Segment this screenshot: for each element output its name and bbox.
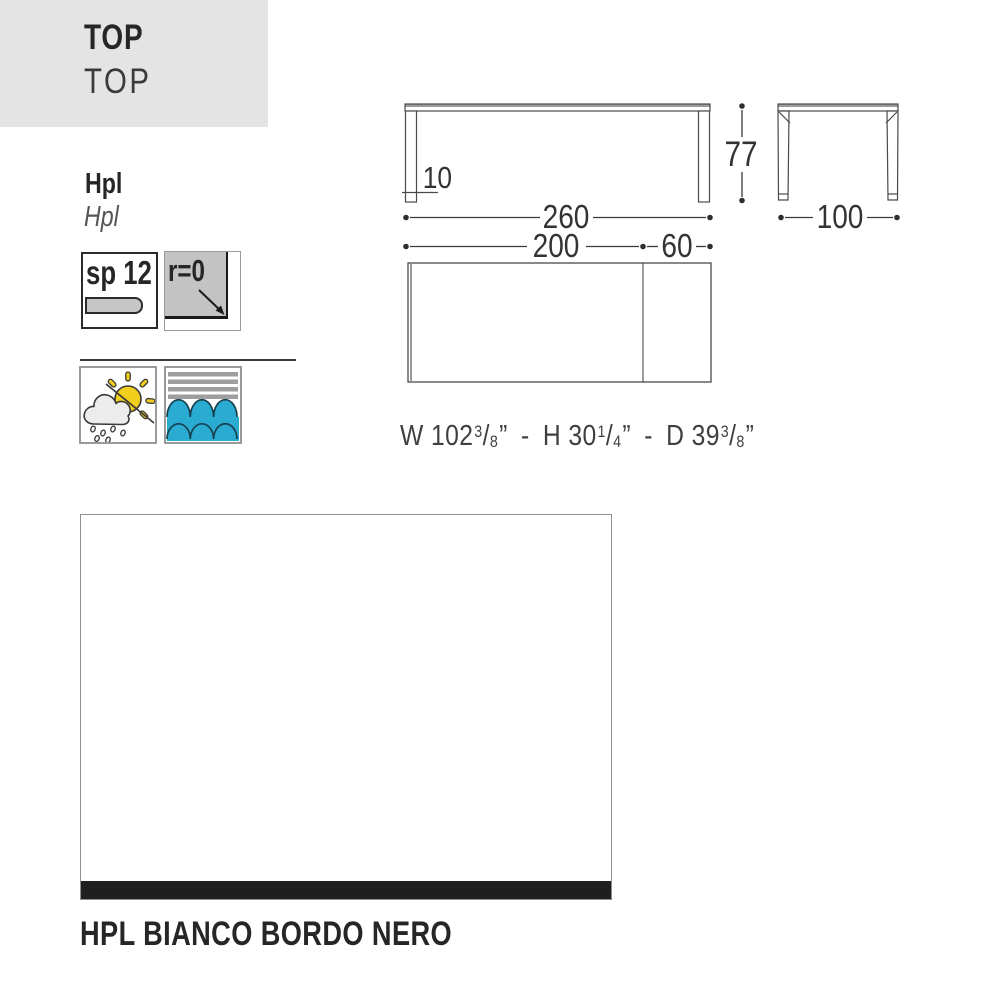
corner-radius-box: r=0 xyxy=(164,251,241,331)
dim-leg-width: 10 xyxy=(423,161,452,195)
plank-icon xyxy=(85,297,143,314)
technical-drawing: 10 260 200 60 77 100 xyxy=(395,95,960,400)
page-title-translation: TOP xyxy=(84,62,151,102)
side-view xyxy=(778,104,898,200)
divider-line xyxy=(80,359,296,361)
sun-cloud-rain-icon xyxy=(81,368,155,442)
thickness-label: sp 12 xyxy=(86,254,152,292)
swatch-edge-strip xyxy=(81,881,611,899)
material-name: Hpl xyxy=(85,168,122,201)
material-name-translation: Hpl xyxy=(84,201,119,234)
water-resistant-box xyxy=(164,366,242,444)
separator: - xyxy=(644,420,653,452)
separator: - xyxy=(521,420,530,452)
waves-icon xyxy=(166,368,240,442)
dim-depth: 100 xyxy=(817,199,864,236)
depth-imperial: D 393/8” xyxy=(666,420,754,452)
height-imperial: H 301/4” xyxy=(543,420,631,452)
thickness-spec-box: sp 12 xyxy=(81,252,158,329)
page-title: TOP xyxy=(84,18,143,58)
outdoor-use-box xyxy=(79,366,157,444)
imperial-dimensions: W 1023/8” - H 301/4” - D 393/8” xyxy=(400,420,754,453)
corner-arrow-icon xyxy=(165,252,239,329)
finish-swatch xyxy=(80,514,612,900)
dim-top-width: 200 xyxy=(533,228,580,265)
width-imperial: W 1023/8” xyxy=(400,420,508,452)
finish-caption: HPL BIANCO BORDO NERO xyxy=(80,915,452,954)
top-view xyxy=(408,263,711,382)
dim-extension-width: 60 xyxy=(661,228,692,265)
dim-height: 77 xyxy=(724,135,757,174)
